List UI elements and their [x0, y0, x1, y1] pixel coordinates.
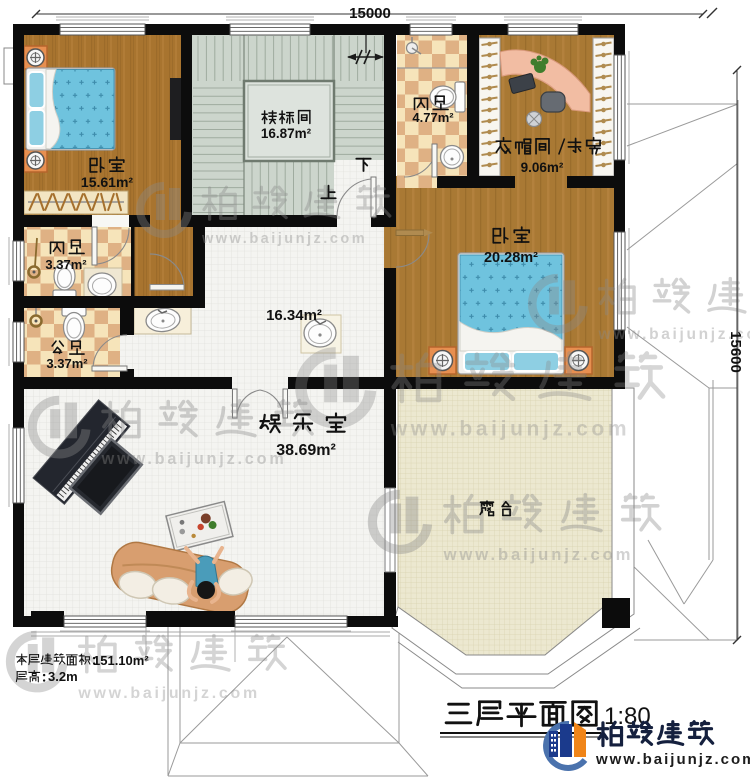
- svg-text:www.baijunjz.com: www.baijunjz.com: [201, 231, 367, 247]
- svg-text:16.34m²: 16.34m²: [266, 307, 322, 324]
- svg-text:3.2m: 3.2m: [48, 669, 78, 684]
- svg-text:www.baijunjz.com: www.baijunjz.com: [443, 545, 634, 564]
- svg-text:3.37m²: 3.37m²: [45, 257, 87, 272]
- svg-text:www.baijunjz.com: www.baijunjz.com: [77, 685, 260, 702]
- svg-text:15600: 15600: [727, 331, 744, 373]
- svg-text:151.10m²: 151.10m²: [93, 653, 149, 668]
- svg-text:15.61m²: 15.61m²: [81, 174, 133, 190]
- svg-text:38.69m²: 38.69m²: [276, 442, 336, 459]
- svg-text:www.baijunjz.com: www.baijunjz.com: [595, 751, 750, 768]
- svg-text:www.baijunjz.com: www.baijunjz.com: [101, 450, 287, 468]
- svg-text:3.37m²: 3.37m²: [46, 356, 88, 371]
- svg-text:15000: 15000: [349, 5, 391, 22]
- svg-text:16.87m²: 16.87m²: [261, 126, 312, 141]
- svg-text:www.baijunjz.com: www.baijunjz.com: [390, 418, 630, 441]
- svg-text:4.77m²: 4.77m²: [412, 110, 454, 125]
- svg-text:20.28m²: 20.28m²: [484, 250, 538, 266]
- svg-text:9.06m²: 9.06m²: [521, 160, 564, 175]
